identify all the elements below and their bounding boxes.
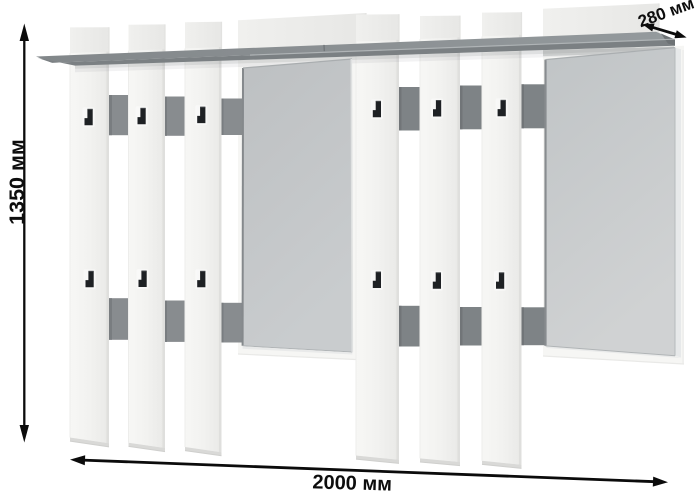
- svg-text:2000 мм: 2000 мм: [312, 471, 392, 495]
- svg-text:1350 мм: 1350 мм: [5, 139, 29, 225]
